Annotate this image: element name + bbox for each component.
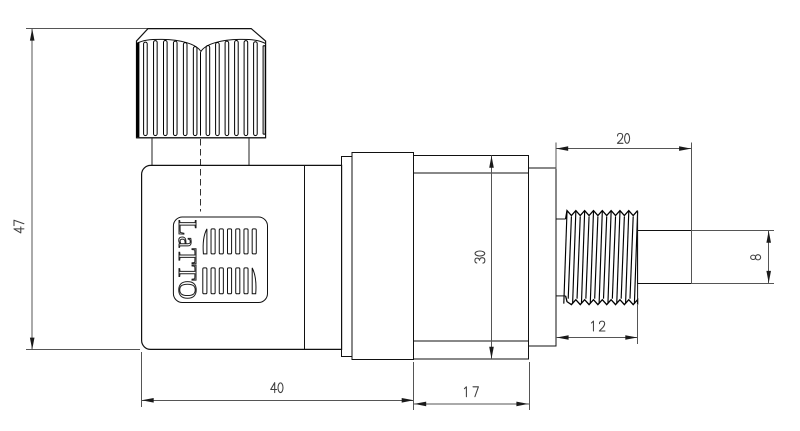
svg-text:LaTTO: LaTTO [173, 220, 202, 300]
